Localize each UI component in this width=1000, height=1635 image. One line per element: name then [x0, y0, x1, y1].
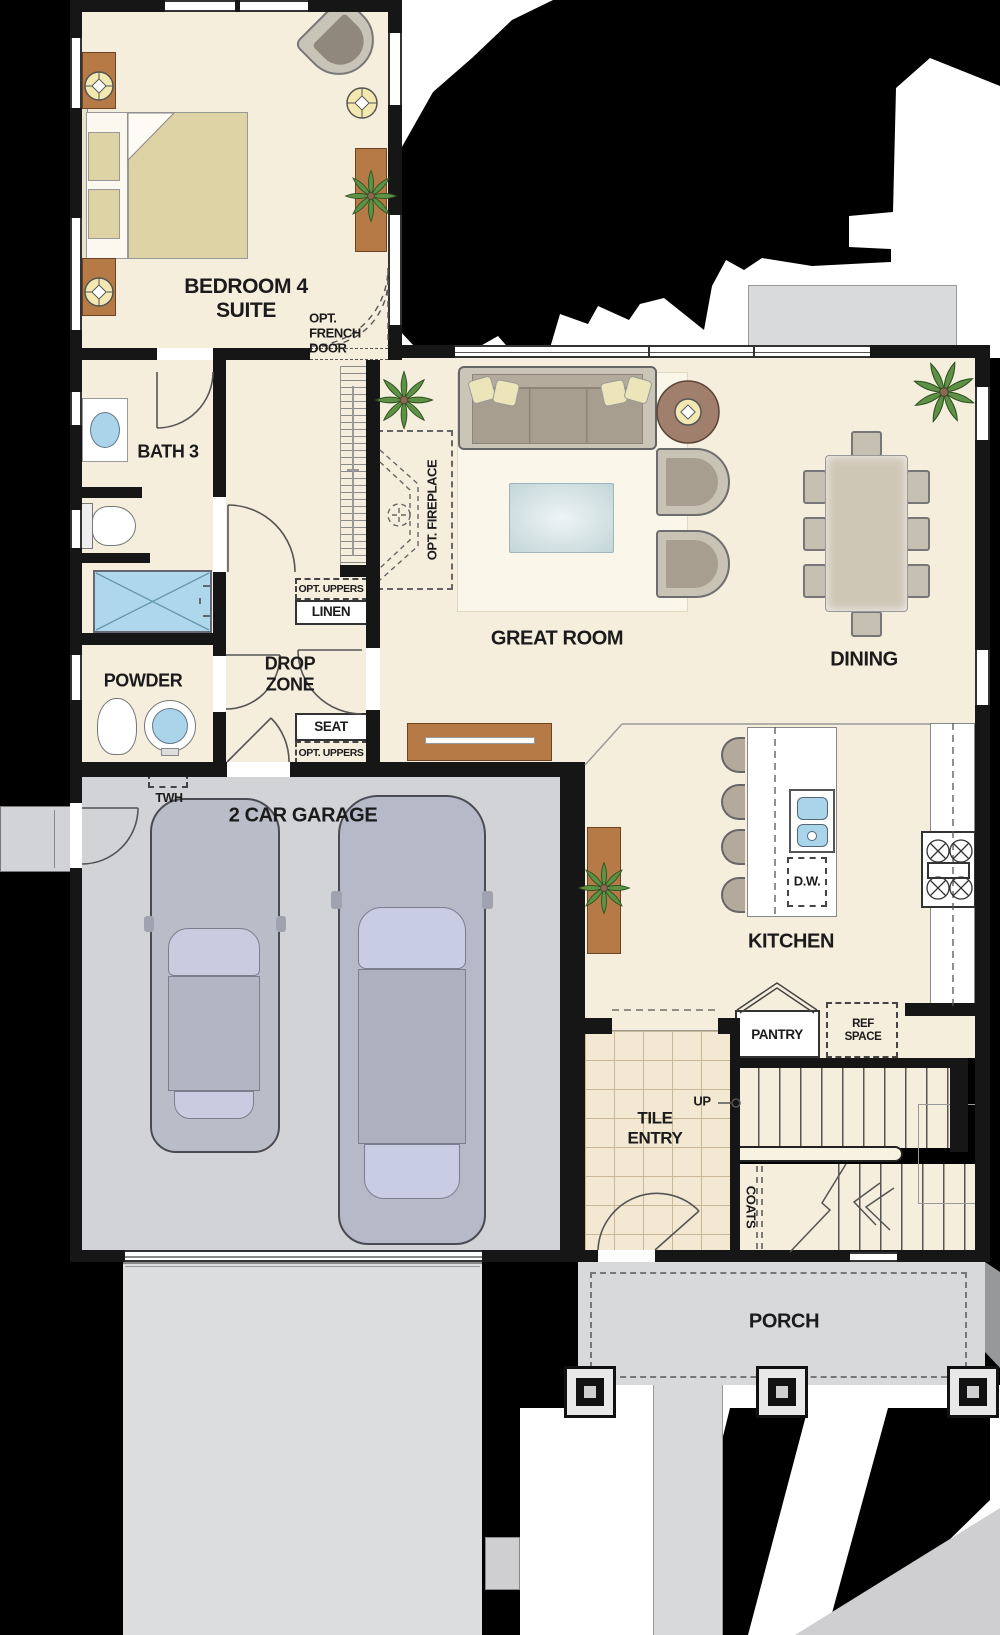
bed-blanket	[128, 112, 248, 259]
door-opening	[213, 656, 226, 712]
yard-below-porch-left	[520, 1408, 578, 1635]
wall	[213, 360, 226, 497]
label-tile-entry: TILEENTRY	[628, 1108, 683, 1147]
wall	[737, 1058, 968, 1068]
window	[388, 215, 402, 325]
label-dining: DINING	[830, 649, 898, 672]
wall	[82, 487, 142, 498]
window	[70, 38, 82, 108]
sliding-glass-door	[455, 345, 870, 358]
dining-chair	[803, 470, 827, 504]
porch-column	[564, 1366, 616, 1418]
coffee-table-rug	[509, 483, 614, 553]
front-door-threshold	[598, 1250, 655, 1262]
window	[388, 33, 402, 105]
wall	[82, 633, 213, 645]
porch-column	[947, 1366, 999, 1418]
label-drop-zone: DROPZONE	[265, 653, 315, 694]
opt-fireplace-box	[377, 430, 453, 590]
dining-table	[825, 455, 908, 612]
dining-chair	[851, 611, 882, 637]
kitchen-runner-rug	[587, 827, 621, 954]
closet-shelving	[340, 366, 368, 572]
media-console-shelf	[425, 737, 535, 744]
powder-toilet	[97, 698, 137, 755]
label-dw: D.W.	[794, 875, 821, 890]
label-great-room: GREAT ROOM	[491, 628, 623, 651]
garage-door-inner-line	[125, 1266, 480, 1270]
yard-below-porch	[578, 1385, 1000, 1635]
powder-sink-base	[161, 748, 179, 756]
door-opening	[157, 348, 213, 360]
side-walk-pad	[485, 1537, 520, 1590]
wall	[585, 1018, 612, 1034]
bed-pillow	[88, 132, 120, 181]
wall	[560, 777, 585, 1252]
nightstand	[82, 258, 116, 316]
dining-chair	[803, 564, 827, 598]
window	[240, 0, 308, 12]
wall	[70, 762, 585, 777]
garage-door	[125, 1250, 482, 1262]
label-porch: PORCH	[749, 1311, 819, 1334]
label-kitchen: KITCHEN	[748, 931, 834, 954]
driveway	[123, 1262, 482, 1635]
label-powder: POWDER	[104, 671, 183, 692]
label-seat: SEAT	[314, 719, 347, 735]
label-ref-space: REFSPACE	[845, 1018, 882, 1044]
label-pantry: PANTRY	[751, 1027, 803, 1043]
label-garage: 2 CAR GARAGE	[229, 805, 378, 828]
label-bedroom4: BEDROOM 4SUITE	[184, 275, 308, 323]
label-up: UP	[693, 1095, 710, 1110]
label-opt-fireplace: OPT. FIREPLACE	[426, 460, 441, 561]
bath-sink	[90, 412, 120, 448]
side-door-stoop-step	[0, 810, 55, 868]
window	[70, 655, 82, 700]
window	[70, 392, 82, 425]
wall	[905, 1003, 975, 1016]
powder-sink-bowl	[152, 708, 188, 744]
dining-chair	[851, 431, 882, 457]
porch-column	[756, 1366, 808, 1418]
kitchen-sink	[789, 789, 835, 853]
accent-chair	[656, 530, 730, 598]
dining-chair	[906, 470, 930, 504]
wall	[213, 572, 226, 645]
car-sports	[150, 798, 280, 1153]
door-opening	[227, 762, 290, 777]
range-center	[927, 862, 970, 879]
bed-pillow	[88, 189, 120, 239]
window	[850, 1252, 897, 1262]
label-linen: LINEN	[312, 604, 351, 620]
label-opt-uppers-bottom: OPT. UPPERS	[298, 747, 363, 759]
door-opening	[213, 497, 226, 572]
door-opening	[366, 648, 380, 710]
wall	[950, 1068, 968, 1152]
front-walkway	[653, 1385, 723, 1635]
window	[975, 650, 990, 705]
label-opt-french-door: OPT.FRENCHDOOR	[309, 312, 361, 357]
nightstand	[82, 52, 116, 109]
accent-chair	[656, 448, 730, 516]
dining-chair	[803, 517, 827, 551]
label-coats: COATS	[743, 1186, 758, 1229]
stair-railing	[733, 1146, 903, 1162]
shower	[93, 570, 212, 633]
wall	[340, 565, 368, 577]
window	[70, 510, 82, 548]
window	[70, 218, 82, 330]
dining-chair	[906, 564, 930, 598]
car-suv	[338, 795, 486, 1245]
window	[165, 0, 235, 12]
patio-slab	[748, 285, 957, 352]
label-twh: TWH	[155, 791, 182, 805]
throw-pillow	[492, 379, 520, 407]
floor-plan: BEDROOM 4SUITE OPT.FRENCHDOOR BATH 3 POW…	[0, 0, 1000, 1635]
door-opening	[70, 803, 82, 868]
dining-chair	[906, 517, 930, 551]
dresser	[355, 148, 387, 252]
window	[975, 387, 990, 440]
toilet-bowl	[92, 506, 136, 546]
wall	[70, 0, 82, 1262]
wall	[975, 345, 990, 1262]
label-bath3: BATH 3	[137, 442, 198, 463]
wall	[82, 553, 150, 563]
label-opt-uppers-top: OPT. UPPERS	[298, 583, 363, 595]
